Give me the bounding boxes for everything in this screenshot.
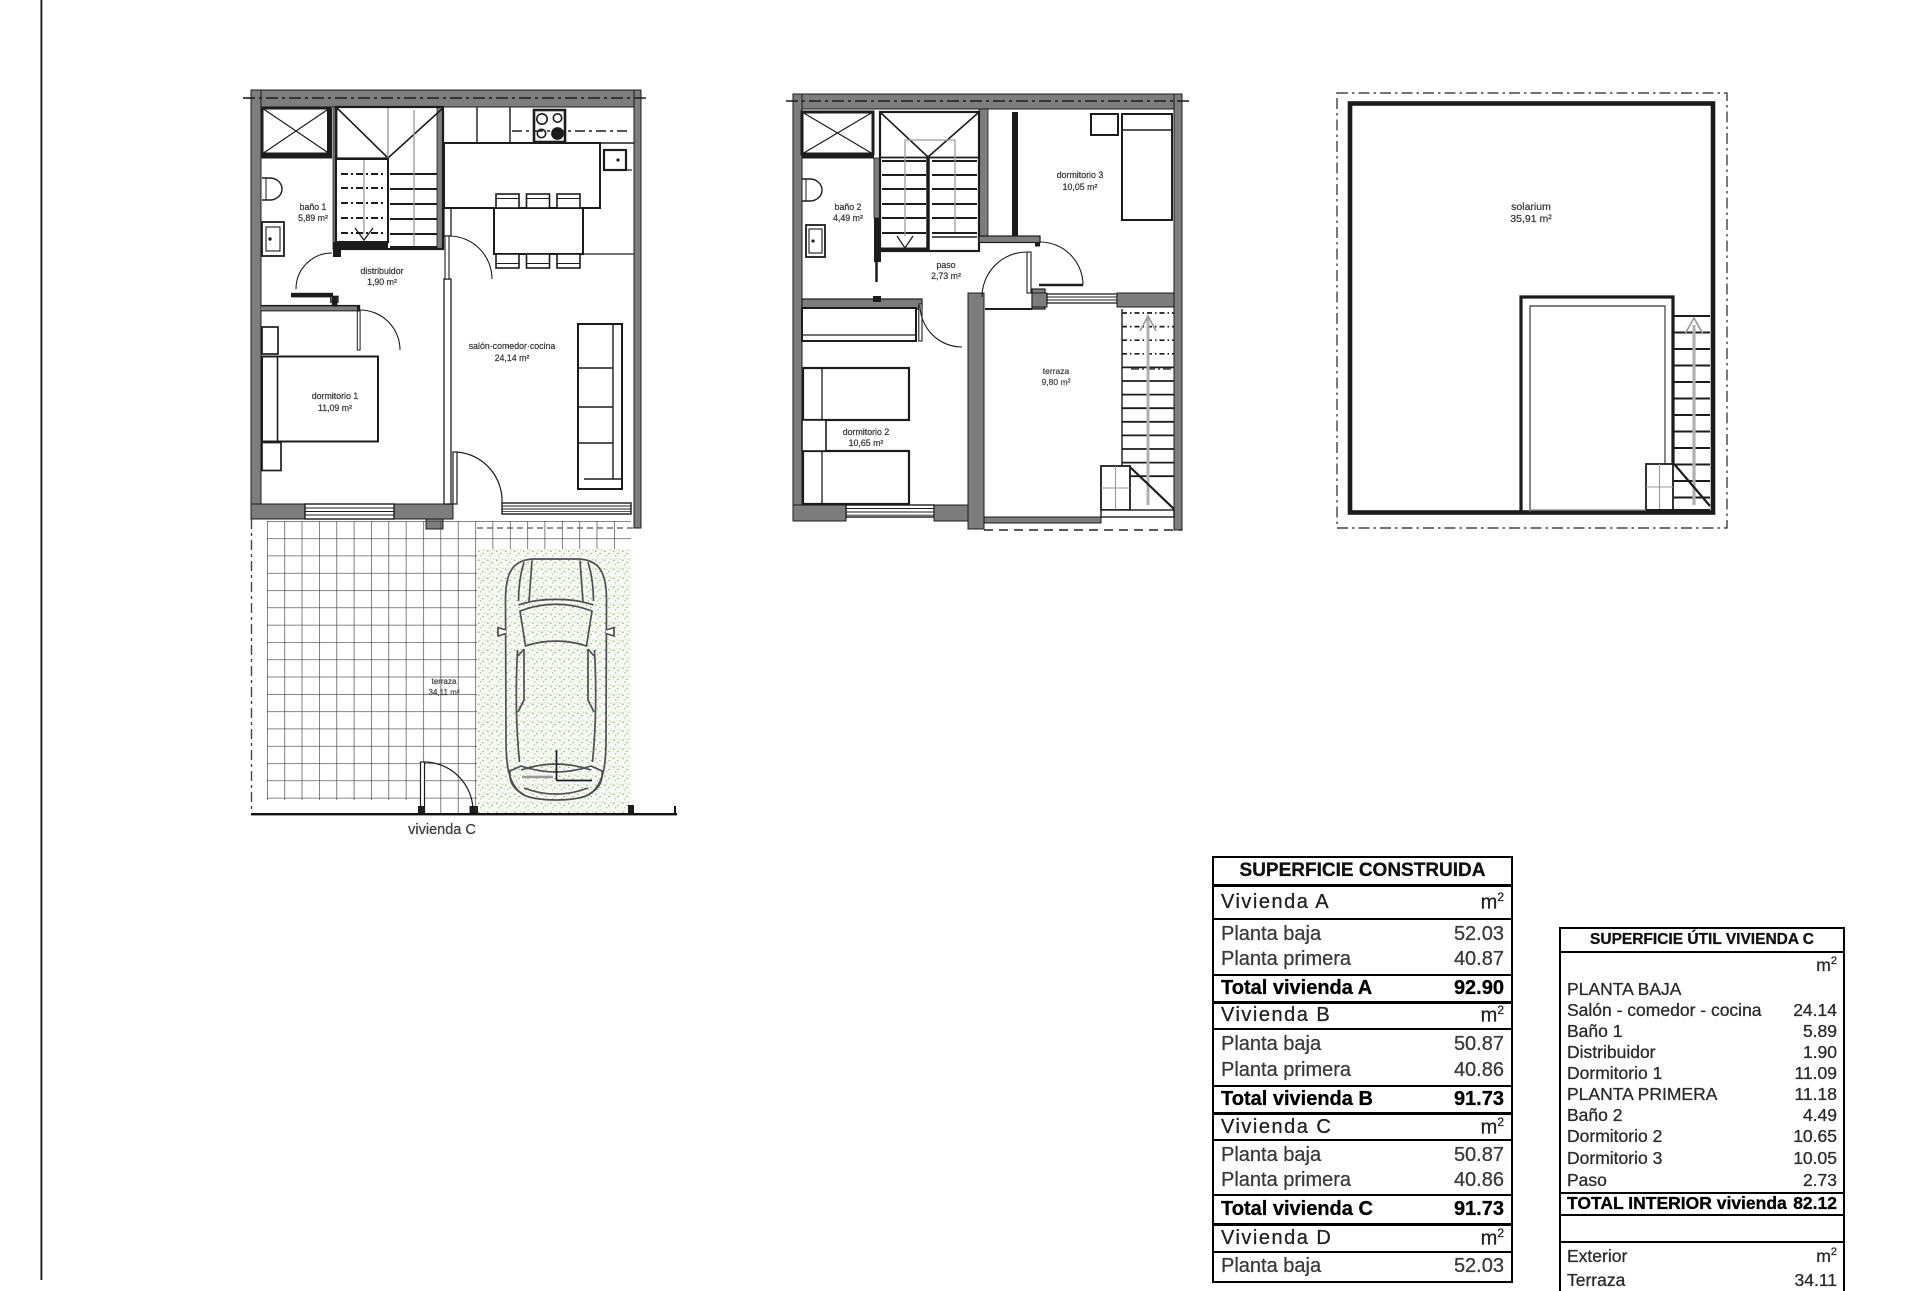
svg-text:4,49 m²: 4,49 m² — [833, 213, 863, 223]
svg-text:salón·comedor·cocina: salón·comedor·cocina — [469, 341, 556, 351]
svg-text:9,80 m²: 9,80 m² — [1042, 377, 1071, 387]
svg-text:terraza: terraza — [1043, 366, 1070, 376]
svg-text:terraza: terraza — [432, 677, 457, 686]
svg-text:35,91 m²: 35,91 m² — [1510, 213, 1552, 225]
svg-text:baño 1: baño 1 — [300, 202, 327, 212]
svg-text:34,11 m²: 34,11 m² — [429, 688, 460, 697]
svg-text:10,65 m²: 10,65 m² — [849, 438, 884, 448]
svg-text:11,09 m²: 11,09 m² — [318, 403, 352, 413]
svg-text:solarium: solarium — [1511, 201, 1551, 213]
svg-text:vivienda C: vivienda C — [408, 822, 476, 838]
svg-text:1,90 m²: 1,90 m² — [367, 277, 397, 287]
svg-text:paso: paso — [936, 260, 955, 270]
svg-text:24,14 m²: 24,14 m² — [495, 353, 530, 363]
svg-text:2,73 m²: 2,73 m² — [931, 271, 961, 281]
svg-text:10,05 m²: 10,05 m² — [1063, 182, 1098, 192]
svg-text:5,89 m²: 5,89 m² — [298, 213, 328, 223]
svg-text:distribuidor: distribuidor — [360, 266, 403, 276]
svg-text:baño 2: baño 2 — [835, 202, 862, 212]
svg-text:dormitorio 1: dormitorio 1 — [312, 391, 359, 401]
svg-text:dormitorio 3: dormitorio 3 — [1057, 170, 1104, 180]
svg-text:dormitorio 2: dormitorio 2 — [843, 427, 890, 437]
